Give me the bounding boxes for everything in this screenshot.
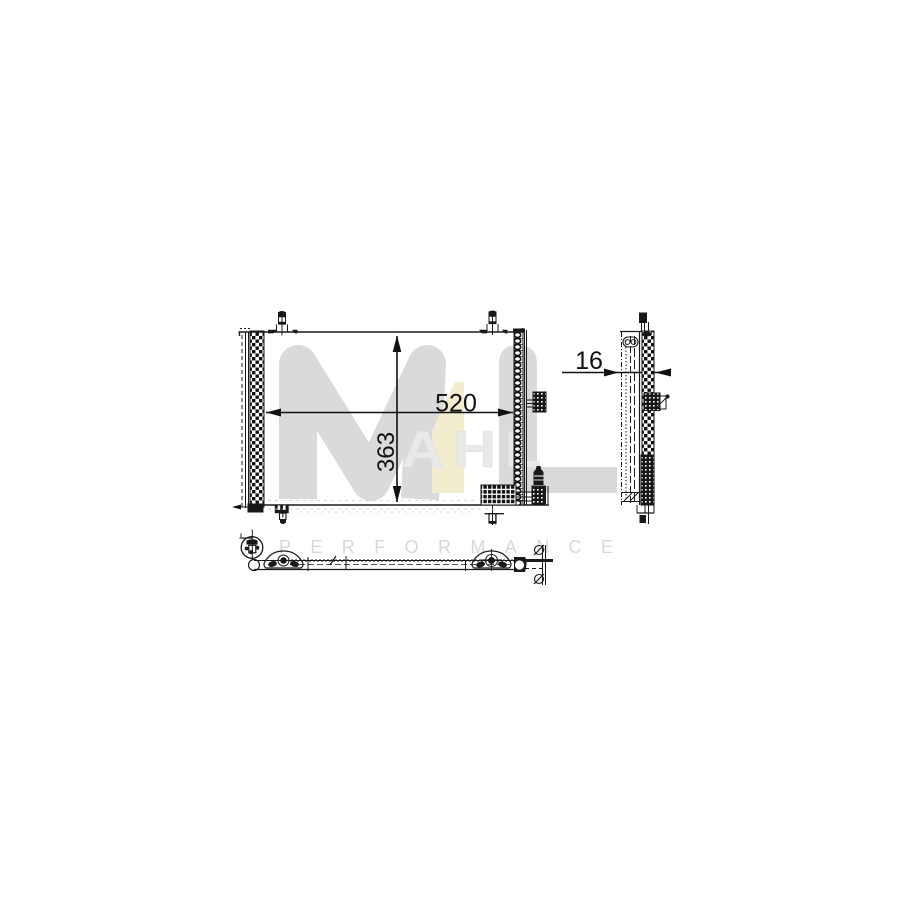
svg-text:16: 16 — [575, 347, 603, 375]
svg-text:520: 520 — [435, 390, 477, 418]
svg-text:AHL: AHL — [401, 420, 550, 478]
svg-text:363: 363 — [373, 432, 400, 472]
svg-text:PERFORMANCE: PERFORMANCE — [279, 537, 632, 557]
